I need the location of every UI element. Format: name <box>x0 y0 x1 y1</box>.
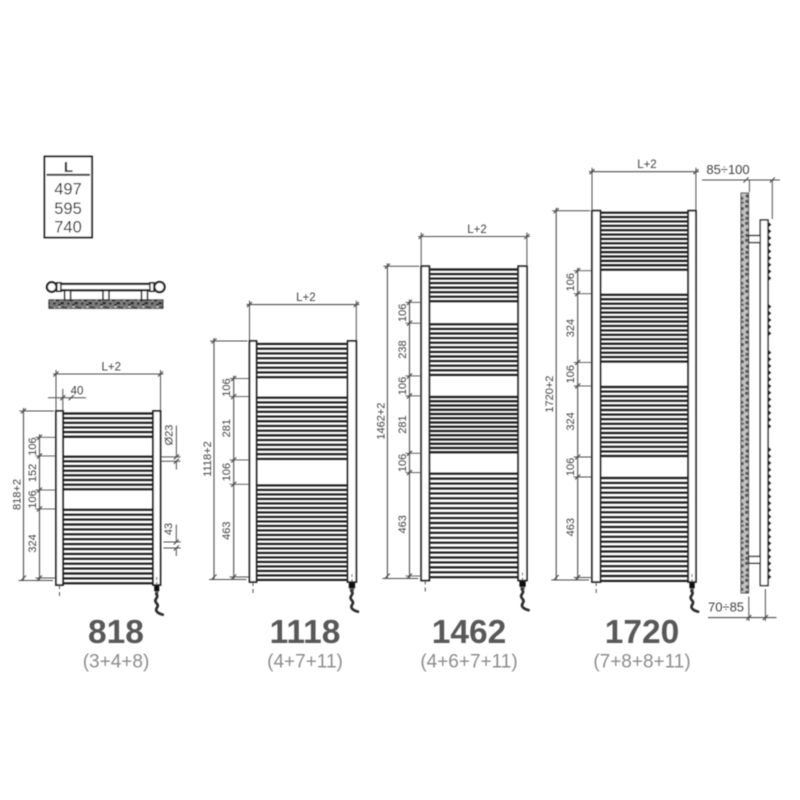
svg-text:70÷85: 70÷85 <box>708 600 744 615</box>
svg-text:463: 463 <box>397 515 409 533</box>
svg-text:1118+2: 1118+2 <box>202 441 214 476</box>
svg-text:595: 595 <box>54 200 82 218</box>
svg-text:106: 106 <box>221 463 233 481</box>
svg-text:(4+7+11): (4+7+11) <box>267 652 343 673</box>
svg-text:L+2: L+2 <box>467 224 487 236</box>
svg-text:818: 818 <box>88 614 144 651</box>
svg-text:1462: 1462 <box>432 614 507 651</box>
svg-text:(3+4+8): (3+4+8) <box>83 652 150 673</box>
svg-text:106: 106 <box>221 378 233 396</box>
svg-text:324: 324 <box>27 534 39 552</box>
svg-text:85÷100: 85÷100 <box>706 162 749 177</box>
svg-text:106: 106 <box>27 437 39 455</box>
svg-text:L: L <box>64 159 73 176</box>
svg-text:L+2: L+2 <box>296 292 316 304</box>
svg-text:238: 238 <box>397 340 409 358</box>
svg-text:106: 106 <box>397 454 409 472</box>
svg-text:1720+2: 1720+2 <box>544 376 556 413</box>
svg-text:L+2: L+2 <box>101 362 121 374</box>
svg-text:281: 281 <box>221 419 233 437</box>
svg-text:106: 106 <box>27 490 39 508</box>
svg-text:43: 43 <box>163 523 175 535</box>
svg-text:1720: 1720 <box>605 614 680 651</box>
svg-text:(7+8+8+11): (7+8+8+11) <box>593 652 690 673</box>
svg-text:106: 106 <box>565 458 577 476</box>
svg-text:463: 463 <box>565 518 577 536</box>
svg-text:(4+6+7+11): (4+6+7+11) <box>420 652 517 673</box>
svg-text:L+2: L+2 <box>637 159 657 171</box>
svg-text:281: 281 <box>397 415 409 433</box>
svg-text:106: 106 <box>397 377 409 395</box>
svg-text:740: 740 <box>54 218 82 236</box>
svg-text:1118: 1118 <box>270 614 341 651</box>
svg-text:40: 40 <box>71 386 84 398</box>
svg-text:106: 106 <box>565 365 577 383</box>
svg-text:818+2: 818+2 <box>11 479 23 510</box>
svg-text:Ø23: Ø23 <box>164 425 176 446</box>
svg-text:497: 497 <box>54 181 82 199</box>
svg-text:324: 324 <box>565 412 577 430</box>
svg-text:106: 106 <box>565 273 577 291</box>
svg-text:463: 463 <box>221 521 233 539</box>
svg-text:1462+2: 1462+2 <box>375 403 387 440</box>
svg-text:324: 324 <box>565 319 577 337</box>
svg-text:106: 106 <box>397 304 409 322</box>
svg-text:152: 152 <box>27 464 39 482</box>
